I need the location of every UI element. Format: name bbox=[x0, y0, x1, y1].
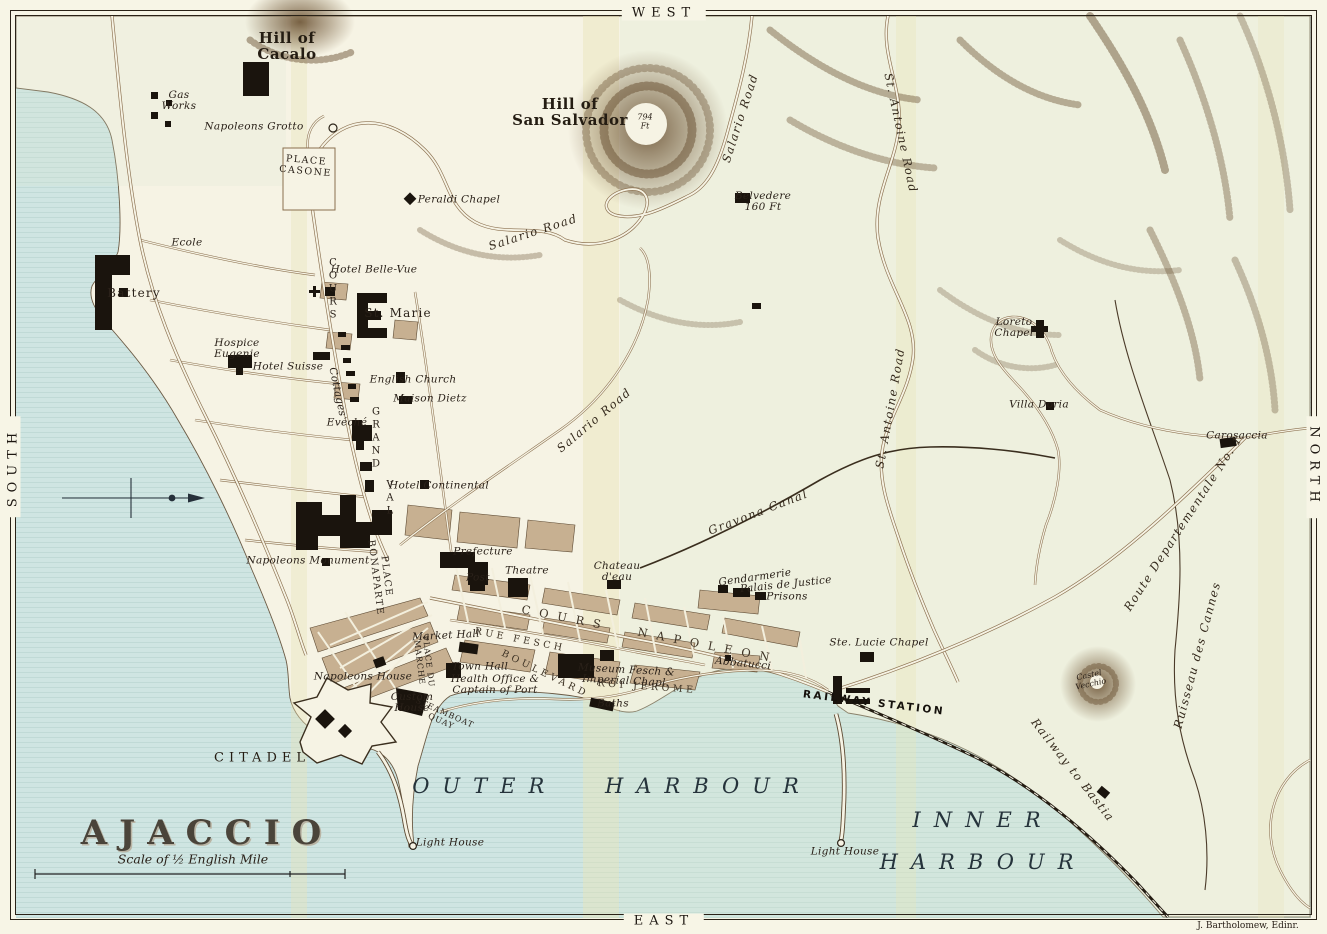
lighthouse-west-icon bbox=[410, 843, 417, 850]
ajaccio-map-page: Hill of CacaloGas WorksNapoleons GrottoP… bbox=[0, 0, 1327, 934]
map-artwork bbox=[0, 0, 1327, 934]
lighthouse-east-icon bbox=[838, 840, 845, 847]
